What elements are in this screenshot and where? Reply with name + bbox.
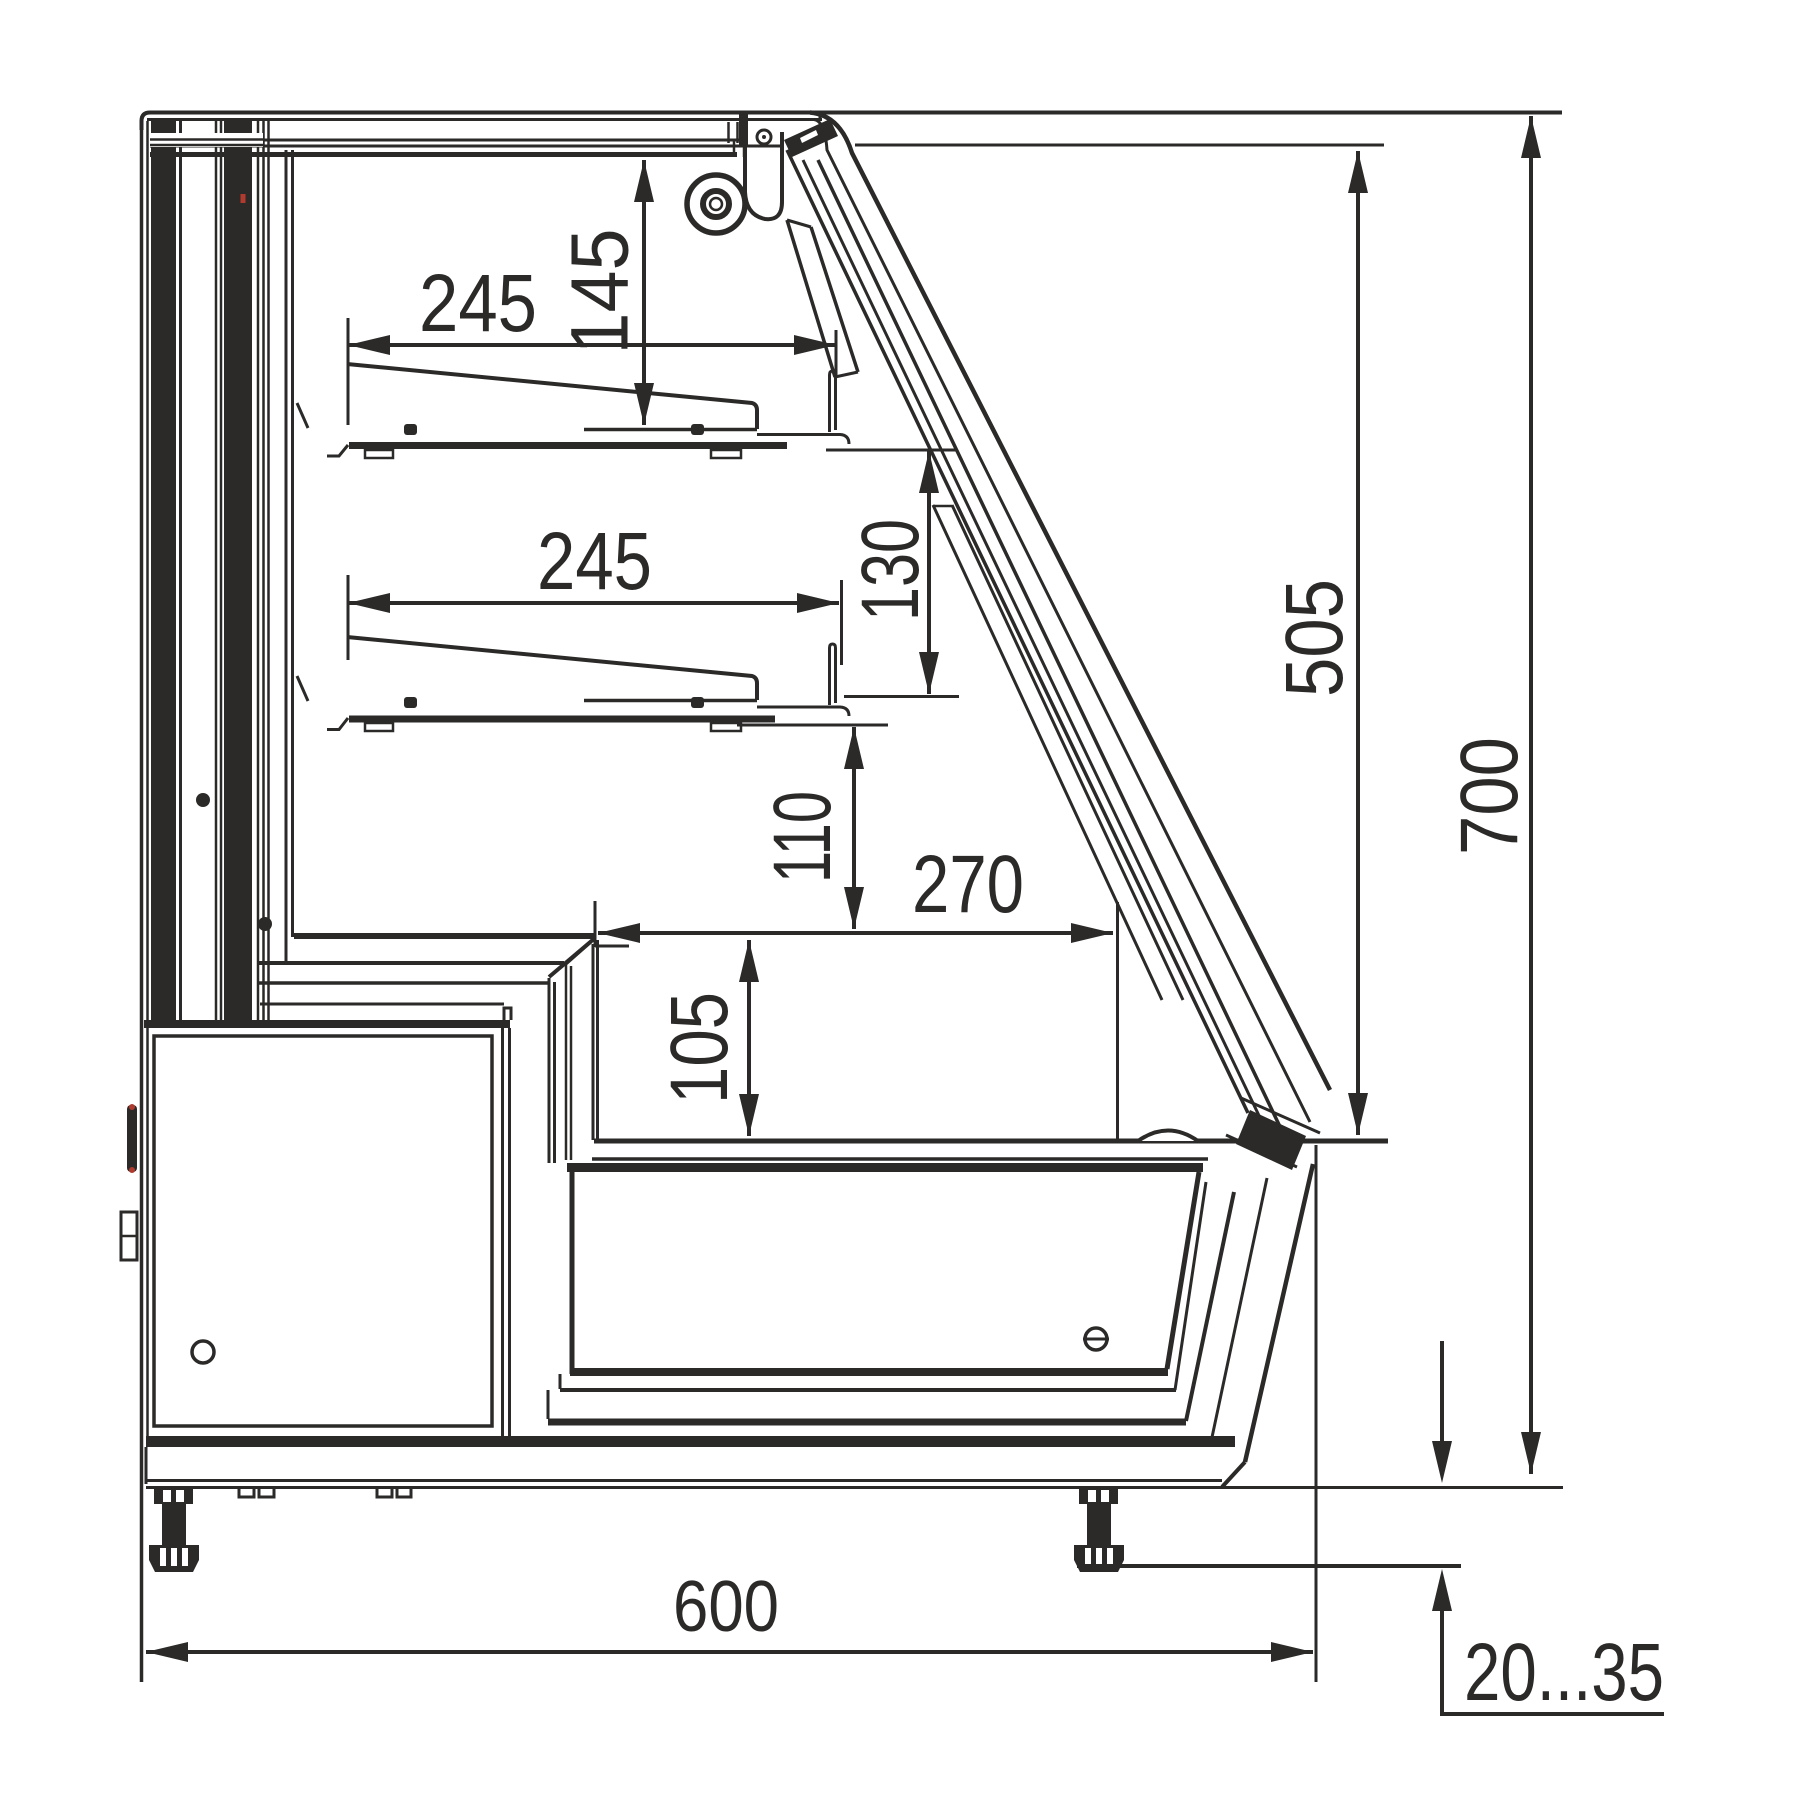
- svg-text:270: 270: [912, 839, 1024, 930]
- svg-text:700: 700: [1444, 737, 1535, 855]
- svg-text:245: 245: [537, 516, 652, 607]
- svg-text:145: 145: [555, 229, 646, 355]
- svg-text:130: 130: [845, 519, 936, 621]
- svg-text:110: 110: [757, 791, 848, 883]
- svg-text:505: 505: [1269, 579, 1360, 697]
- svg-text:245: 245: [419, 258, 537, 349]
- svg-text:600: 600: [673, 1567, 779, 1647]
- svg-text:20...35: 20...35: [1464, 1627, 1664, 1718]
- svg-text:105: 105: [654, 992, 745, 1104]
